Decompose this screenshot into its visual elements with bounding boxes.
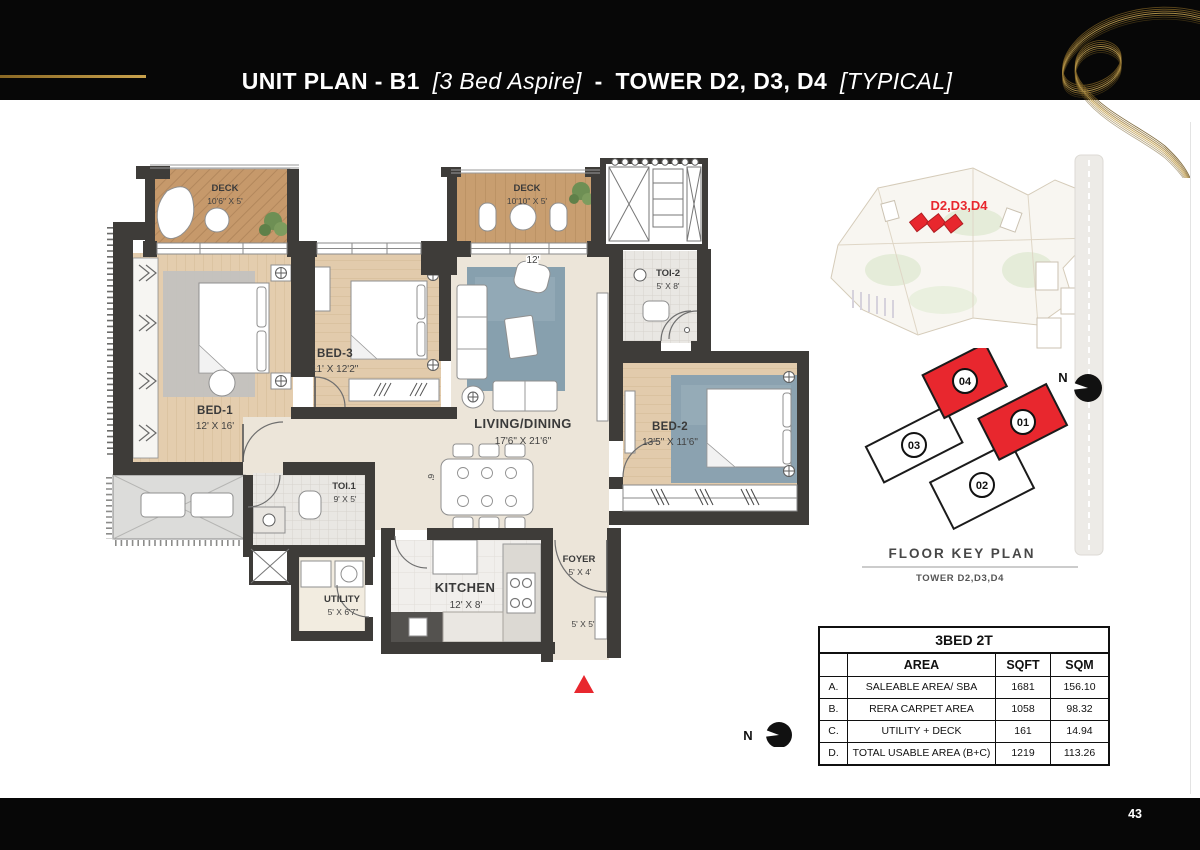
room-dims-bed2: 13'5" X 11'6" xyxy=(642,437,698,448)
unit-04-label: 04 xyxy=(959,376,972,388)
dim-entry: 5' X 5' xyxy=(571,619,594,629)
title-aspire: [3 Bed Aspire] xyxy=(433,68,582,94)
area-table-title: 3BED 2T xyxy=(820,628,1108,654)
room-dims-living: 17'6" X 21'6" xyxy=(495,436,552,447)
site-highlight-label: D2,D3,D4 xyxy=(930,198,988,213)
keyplan-subtitle: TOWER D2,D3,D4 xyxy=(916,573,1004,584)
coffee-table-icon xyxy=(504,315,537,359)
entrance-arrow-icon xyxy=(574,675,594,693)
room-dims-foyer: 5' X 4' xyxy=(568,567,591,577)
row-sqft: 1681 xyxy=(996,677,1051,699)
room-dims-bed1: 12' X 16' xyxy=(196,421,234,432)
room-dims-bed3: 11' X 12'2" xyxy=(312,364,359,375)
row-sqft: 1219 xyxy=(996,743,1051,764)
room-label-utility: UTILITY xyxy=(324,594,361,605)
keyplan-title: FLOOR KEY PLAN xyxy=(888,546,1035,561)
room-label-toi1: TOI.1 xyxy=(332,481,356,492)
room-label-living: LIVING/DINING xyxy=(474,416,572,431)
unit-01-label: 01 xyxy=(1017,417,1029,429)
room-dims-deck-left: 10'6" X 5' xyxy=(207,196,243,206)
row-sqft: 1058 xyxy=(996,699,1051,721)
bed3-wardrobe xyxy=(349,379,439,401)
header-sqft: SQFT xyxy=(996,654,1051,677)
header-area: AREA xyxy=(848,654,996,677)
row-sqm: 113.26 xyxy=(1051,743,1108,764)
row-sqm: 14.94 xyxy=(1051,721,1108,743)
row-key: D. xyxy=(820,743,848,764)
row-key: C. xyxy=(820,721,848,743)
table-row: C. UTILITY + DECK 161 14.94 xyxy=(820,721,1108,743)
row-key: A. xyxy=(820,677,848,699)
deck-table-icon xyxy=(205,208,229,232)
title-tower: TOWER D2, D3, D4 xyxy=(615,68,827,94)
room-dims-deck-mid: 10'10" X 5' xyxy=(507,196,548,206)
table-row: A. SALEABLE AREA/ SBA 1681 156.10 xyxy=(820,677,1108,699)
row-area: UTILITY + DECK xyxy=(848,721,996,743)
title-separator: - xyxy=(595,68,603,94)
kitchen-cabinet xyxy=(433,540,477,574)
header-sqm: SQM xyxy=(1051,654,1108,677)
row-area: RERA CARPET AREA xyxy=(848,699,996,721)
row-sqm: 156.10 xyxy=(1051,677,1108,699)
north-label: N xyxy=(743,728,752,743)
footer-bar: 43 xyxy=(0,798,1200,850)
floor-plan: DECK 10'6" X 5' DECK 10'10" X 5' BED-1 1… xyxy=(95,125,810,752)
keyplan-north-label: N xyxy=(1058,370,1067,385)
bed3-desk xyxy=(313,267,330,311)
area-table: 3BED 2T AREA SQFT SQM A. SALEABLE AREA/ … xyxy=(818,626,1110,766)
page-margin-line xyxy=(1190,122,1191,794)
room-dims-utility: 5' X 6'7" xyxy=(328,607,359,617)
header-blank xyxy=(820,654,848,677)
room-label-deck-left: DECK xyxy=(212,183,239,194)
row-key: B. xyxy=(820,699,848,721)
table-row: B. RERA CARPET AREA 1058 98.32 xyxy=(820,699,1108,721)
room-dims-toi1: 9' X 5' xyxy=(333,494,356,504)
north-icon: N xyxy=(743,722,792,747)
title-main: UNIT PLAN - B1 xyxy=(242,68,420,94)
room-label-foyer: FOYER xyxy=(563,554,596,565)
area-table-header-row: AREA SQFT SQM xyxy=(820,654,1108,677)
stove-icon xyxy=(507,573,535,613)
unit-03-label: 03 xyxy=(908,440,920,452)
dim-top-width: 12' xyxy=(526,255,539,266)
ottoman-icon xyxy=(209,370,235,396)
title-typical: [TYPICAL] xyxy=(840,68,952,94)
room-label-bed2: BED-2 xyxy=(652,421,688,433)
room-label-bed3: BED-3 xyxy=(317,348,353,360)
page-number: 43 xyxy=(1128,807,1142,821)
table-row: D. TOTAL USABLE AREA (B+C) 1219 113.26 xyxy=(820,743,1108,764)
room-label-kitchen: KITCHEN xyxy=(435,580,496,595)
dim-hall: 6' xyxy=(426,474,436,481)
row-sqft: 161 xyxy=(996,721,1051,743)
unit-02-label: 02 xyxy=(976,480,988,492)
row-area: TOTAL USABLE AREA (B+C) xyxy=(848,743,996,764)
room-label-deck-mid: DECK xyxy=(514,183,541,194)
room-dims-toi2: 5' X 8' xyxy=(656,281,679,291)
room-label-toi2: TOI-2 xyxy=(656,268,680,279)
floor-key-plan: 04 01 03 02 N FLOOR KEY PLAN TOWER D2,D3… xyxy=(850,348,1150,603)
row-area: SALEABLE AREA/ SBA xyxy=(848,677,996,699)
row-sqm: 98.32 xyxy=(1051,699,1108,721)
tv-console xyxy=(597,293,608,421)
keyplan-north-icon: N xyxy=(1058,370,1102,402)
room-label-bed1: BED-1 xyxy=(197,405,233,417)
room-dims-kitchen: 12' X 8' xyxy=(450,600,483,611)
sofa-icon xyxy=(457,285,487,379)
